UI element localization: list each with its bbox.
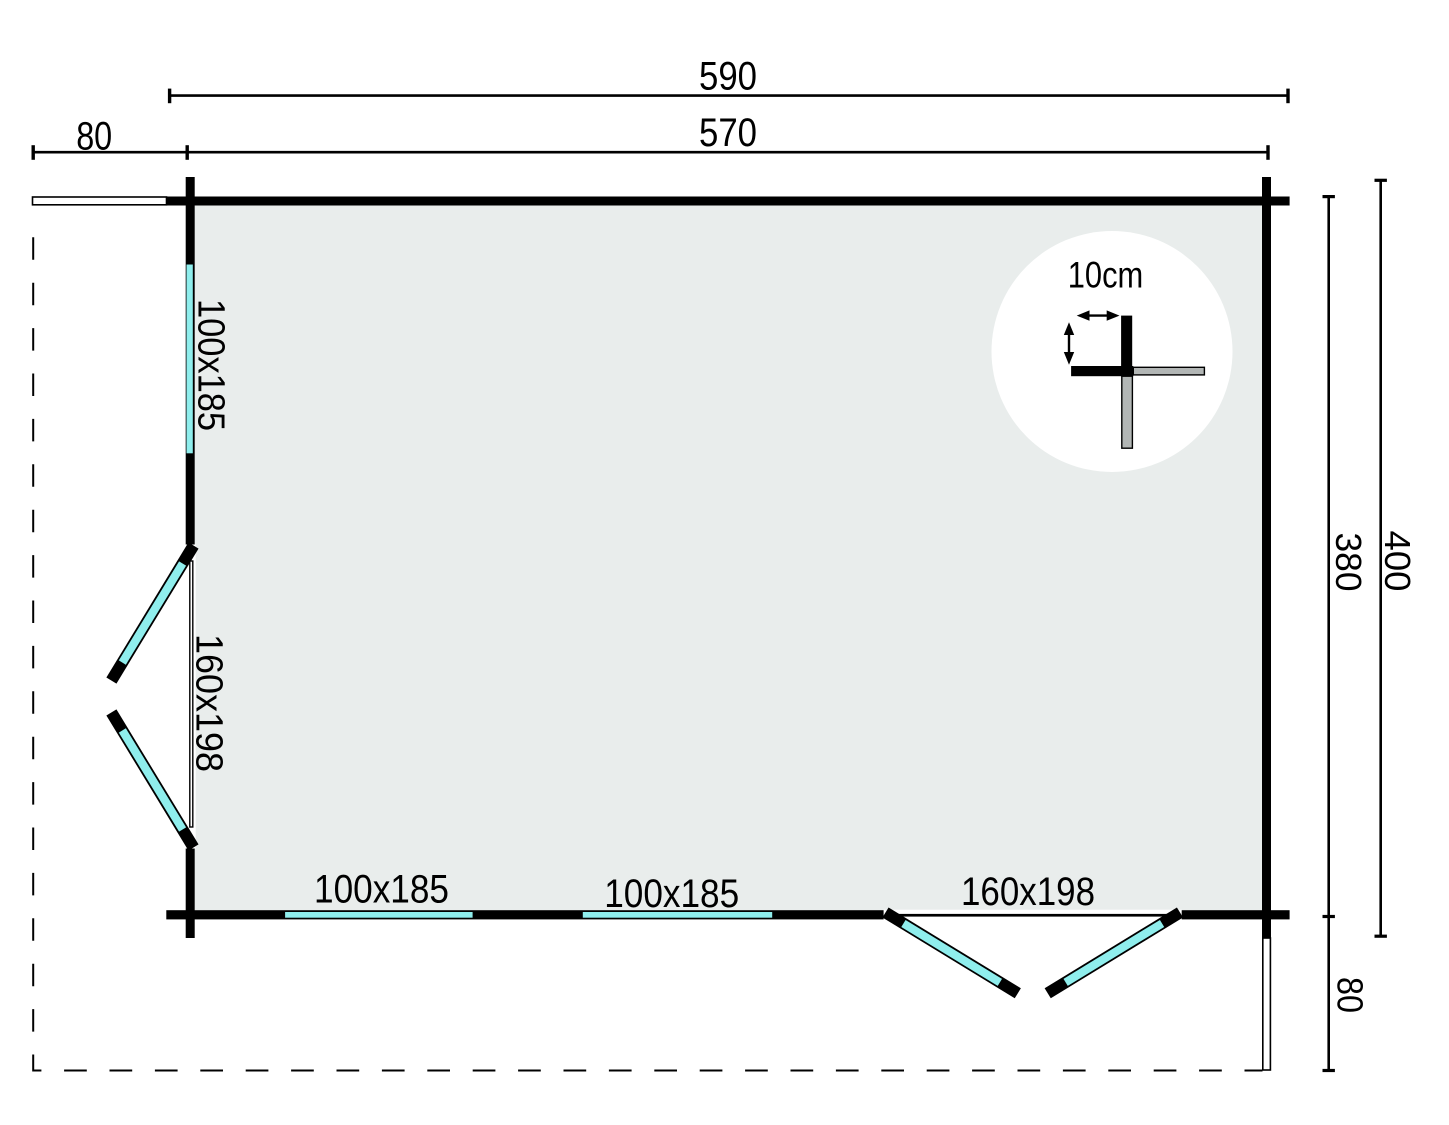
svg-text:570: 570: [699, 111, 757, 155]
svg-text:160x198: 160x198: [961, 870, 1095, 914]
svg-text:100x185: 100x185: [190, 299, 232, 431]
svg-text:80: 80: [76, 115, 112, 159]
svg-text:80: 80: [1330, 977, 1371, 1013]
svg-text:400: 400: [1377, 531, 1418, 592]
svg-text:590: 590: [699, 55, 757, 99]
svg-text:380: 380: [1328, 533, 1369, 592]
svg-text:100x185: 100x185: [604, 872, 739, 916]
svg-text:10cm: 10cm: [1068, 255, 1144, 296]
svg-text:160x198: 160x198: [188, 634, 230, 772]
svg-text:100x185: 100x185: [314, 868, 449, 912]
